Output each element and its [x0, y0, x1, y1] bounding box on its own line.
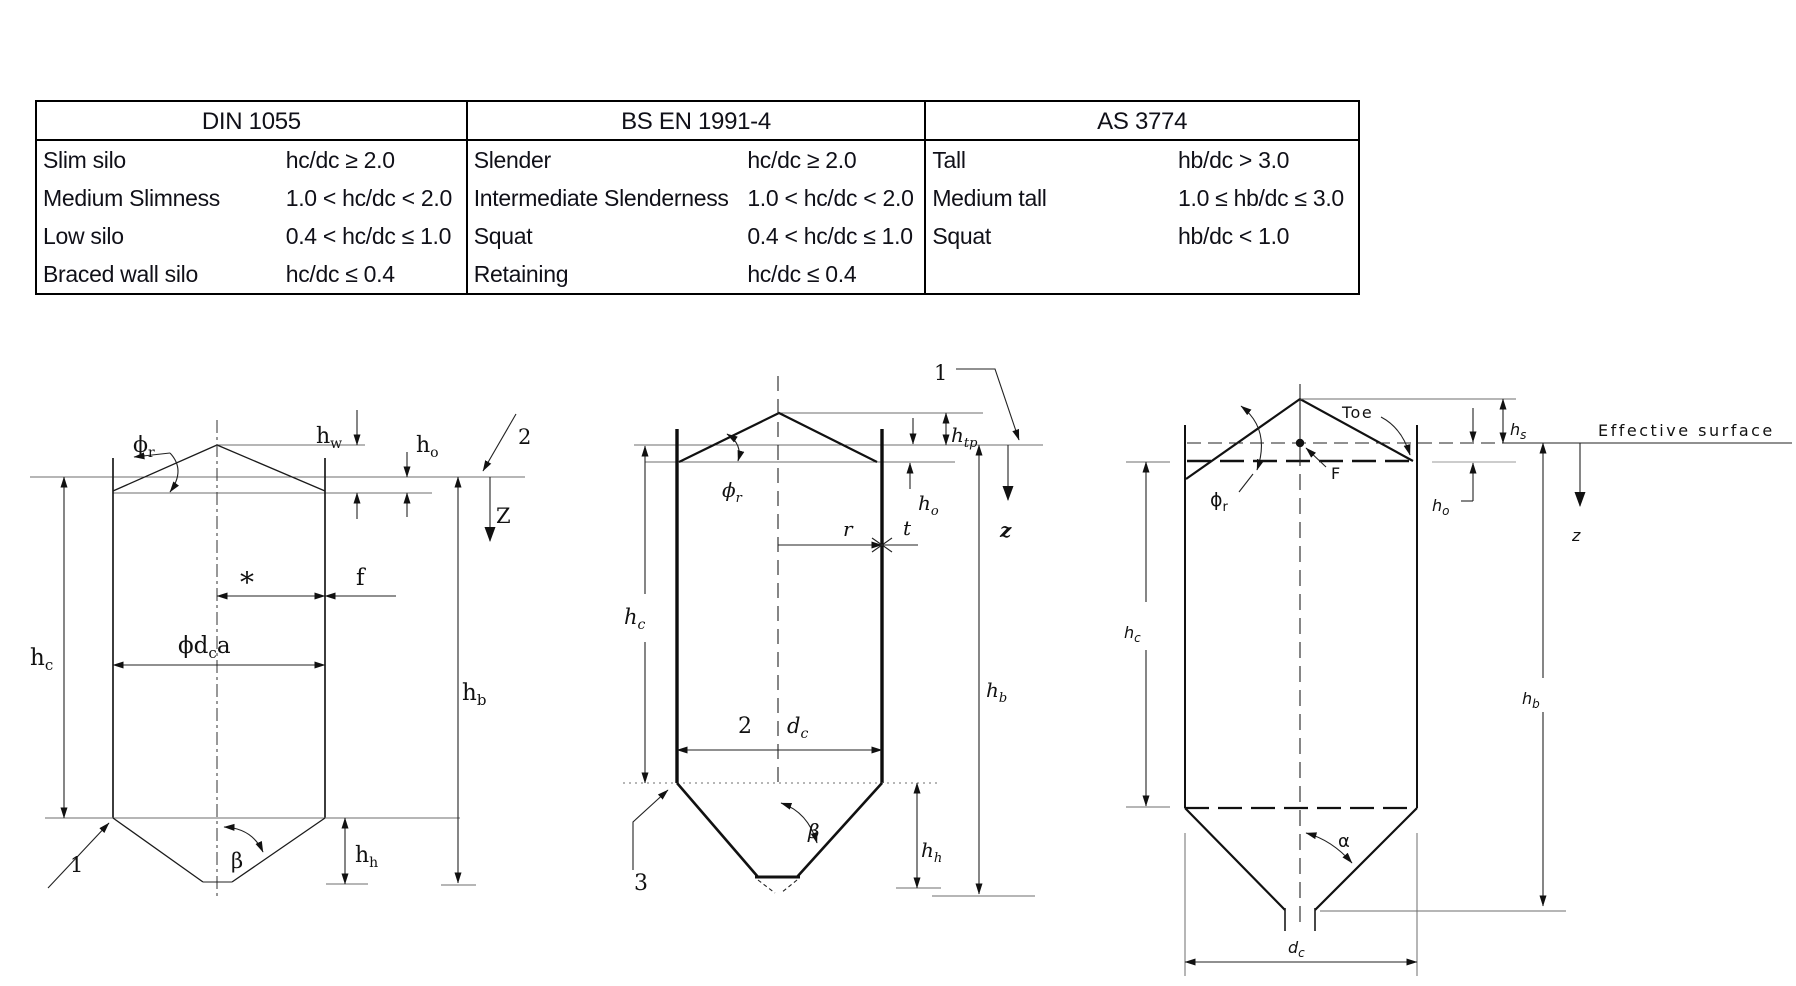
row-value: 0.4 < hc/dc ≤ 1.0: [747, 223, 924, 250]
h-w-label: hw: [316, 424, 342, 452]
h-h-label: hh: [355, 843, 378, 871]
f-label: f: [356, 565, 366, 591]
f-point-leader: [1306, 448, 1326, 467]
table-row: Squat 0.4 < hc/dc ≤ 1.0: [468, 217, 925, 255]
d-c-label: dc: [787, 714, 808, 742]
dimension-lines: [1146, 399, 1580, 962]
diagram-labels: 1 htp ho ϕr hc r t 2 dc z hb β 3 hh: [624, 361, 1012, 896]
bs-en-silo-diagram: 1 htp ho ϕr hc r t 2 dc z hb β 3 hh: [560, 360, 1060, 905]
row-value: hb/dc > 3.0: [1178, 147, 1358, 174]
callout-1-label: 1: [934, 361, 947, 385]
row-name: Squat: [468, 223, 748, 250]
callout-3-leader: [633, 790, 668, 870]
h-o-label: ho: [1432, 496, 1449, 518]
column-header-as: AS 3774: [926, 102, 1358, 141]
dimension-lines: [48, 410, 516, 888]
table-column-bs-en: BS EN 1991-4 Slender hc/dc ≥ 2.0 Interme…: [466, 102, 925, 293]
row-name: Slender: [468, 147, 748, 174]
z-label: Z: [496, 504, 511, 528]
row-value: hc/dc ≤ 0.4: [747, 261, 924, 288]
row-name: Low silo: [37, 223, 286, 250]
table-column-din: DIN 1055 Slim silo hc/dc ≥ 2.0 Medium Sl…: [37, 102, 466, 293]
column-header-bs-en: BS EN 1991-4: [468, 102, 925, 141]
table-row: [926, 255, 1358, 293]
table-row: Slim silo hc/dc ≥ 2.0: [37, 141, 466, 179]
h-h-label: hh: [921, 838, 942, 866]
din-silo-diagram: ϕr hw ho 2 Z hc hb * f ϕdca β 1 hh: [25, 355, 540, 900]
silo-outline: [30, 420, 525, 896]
h-c-label: hc: [30, 645, 53, 674]
beta-label: β: [807, 819, 820, 843]
row-name: Braced wall silo: [37, 261, 286, 288]
table-row: Braced wall silo hc/dc ≤ 0.4: [37, 255, 466, 293]
row-name: Slim silo: [37, 147, 286, 174]
row-value: 1.0 < hc/dc < 2.0: [286, 185, 466, 212]
row-name: Squat: [926, 223, 1178, 250]
callout-2-leader: [483, 414, 516, 471]
star-label: *: [240, 566, 254, 599]
h-b-label: hb: [986, 678, 1007, 706]
effective-surface-label: Effective surface: [1598, 421, 1775, 440]
callout-1-leader: [956, 369, 1019, 440]
two-label: 2: [738, 714, 752, 739]
table-row: Medium tall 1.0 ≤ hb/dc ≤ 3.0: [926, 179, 1358, 217]
table-row: Slender hc/dc ≥ 2.0: [468, 141, 925, 179]
h-o-label: ho: [918, 491, 939, 519]
table-row: Medium Slimness 1.0 < hc/dc < 2.0: [37, 179, 466, 217]
z-label: z: [999, 518, 1012, 542]
table-row: Intermediate Slenderness 1.0 < hc/dc < 2…: [468, 179, 925, 217]
table-row: Low silo 0.4 < hc/dc ≤ 1.0: [37, 217, 466, 255]
row-value: 0.4 < hc/dc ≤ 1.0: [286, 223, 466, 250]
row-value: hc/dc ≥ 2.0: [286, 147, 466, 174]
hopper: [113, 818, 325, 882]
callout-2-label: 2: [518, 425, 531, 449]
r-label: r: [843, 517, 854, 541]
silo-outline: [623, 376, 1043, 896]
row-value: hb/dc < 1.0: [1178, 223, 1358, 250]
phi-r-label: ϕr: [722, 478, 743, 506]
phi-r-angle-arc: [170, 453, 178, 492]
classification-table: DIN 1055 Slim silo hc/dc ≥ 2.0 Medium Sl…: [35, 100, 1360, 295]
t-label: t: [903, 516, 912, 540]
silo-classification-figure: DIN 1055 Slim silo hc/dc ≥ 2.0 Medium Sl…: [0, 0, 1796, 986]
diagram-labels: Toe F ϕr hs ho Effective surface z hc hb…: [1124, 403, 1775, 960]
diagram-labels: ϕr hw ho 2 Z hc hb * f ϕdca β 1 hh: [30, 424, 531, 877]
h-o-label: ho: [416, 433, 439, 461]
row-value: 1.0 < hc/dc < 2.0: [747, 185, 924, 212]
h-tp-label: htp: [951, 423, 978, 451]
row-name: Intermediate Slenderness: [468, 185, 748, 212]
phi-r-label: ϕr: [1210, 489, 1229, 515]
table-row: Tall hb/dc > 3.0: [926, 141, 1358, 179]
table-row: Squat hb/dc < 1.0: [926, 217, 1358, 255]
h-s-label: hs: [1510, 420, 1526, 442]
row-value: hc/dc ≤ 0.4: [286, 261, 466, 288]
row-name: Medium tall: [926, 185, 1178, 212]
callout-1-label: 1: [70, 853, 83, 877]
toe-label: Toe: [1341, 403, 1373, 422]
row-value: hc/dc ≥ 2.0: [747, 147, 924, 174]
row-name: Tall: [926, 147, 1178, 174]
phi-r-label: ϕr: [133, 433, 155, 461]
f-point-dot: [1296, 439, 1304, 447]
row-name: Retaining: [468, 261, 748, 288]
h-b-label: hb: [1522, 689, 1540, 711]
toe-leader: [1381, 417, 1410, 455]
hopper: [677, 783, 882, 877]
f-point-label: F: [1331, 464, 1340, 483]
table-column-as: AS 3774 Tall hb/dc > 3.0 Medium tall 1.0…: [924, 102, 1358, 293]
alpha-label: α: [1338, 831, 1350, 852]
diameter-label: ϕdca: [178, 633, 231, 662]
column-header-din: DIN 1055: [37, 102, 466, 141]
silo-outline: [1126, 384, 1792, 976]
beta-label: β: [231, 849, 243, 873]
beta-angle-arc: [224, 827, 263, 852]
h-c-label: hc: [624, 605, 646, 633]
z-label: z: [1571, 526, 1581, 545]
row-name: Medium Slimness: [37, 185, 286, 212]
callout-3-label: 3: [634, 871, 648, 896]
dimension-lines: [633, 369, 1019, 894]
row-value: 1.0 ≤ hb/dc ≤ 3.0: [1178, 185, 1358, 212]
h-c-label: hc: [1124, 623, 1141, 645]
table-row: Retaining hc/dc ≤ 0.4: [468, 255, 925, 293]
d-c-label: dc: [1288, 938, 1305, 960]
as-silo-diagram: Toe F ϕr hs ho Effective surface z hc hb…: [1100, 370, 1796, 986]
hopper: [1185, 808, 1417, 910]
h-b-label: hb: [462, 680, 486, 709]
